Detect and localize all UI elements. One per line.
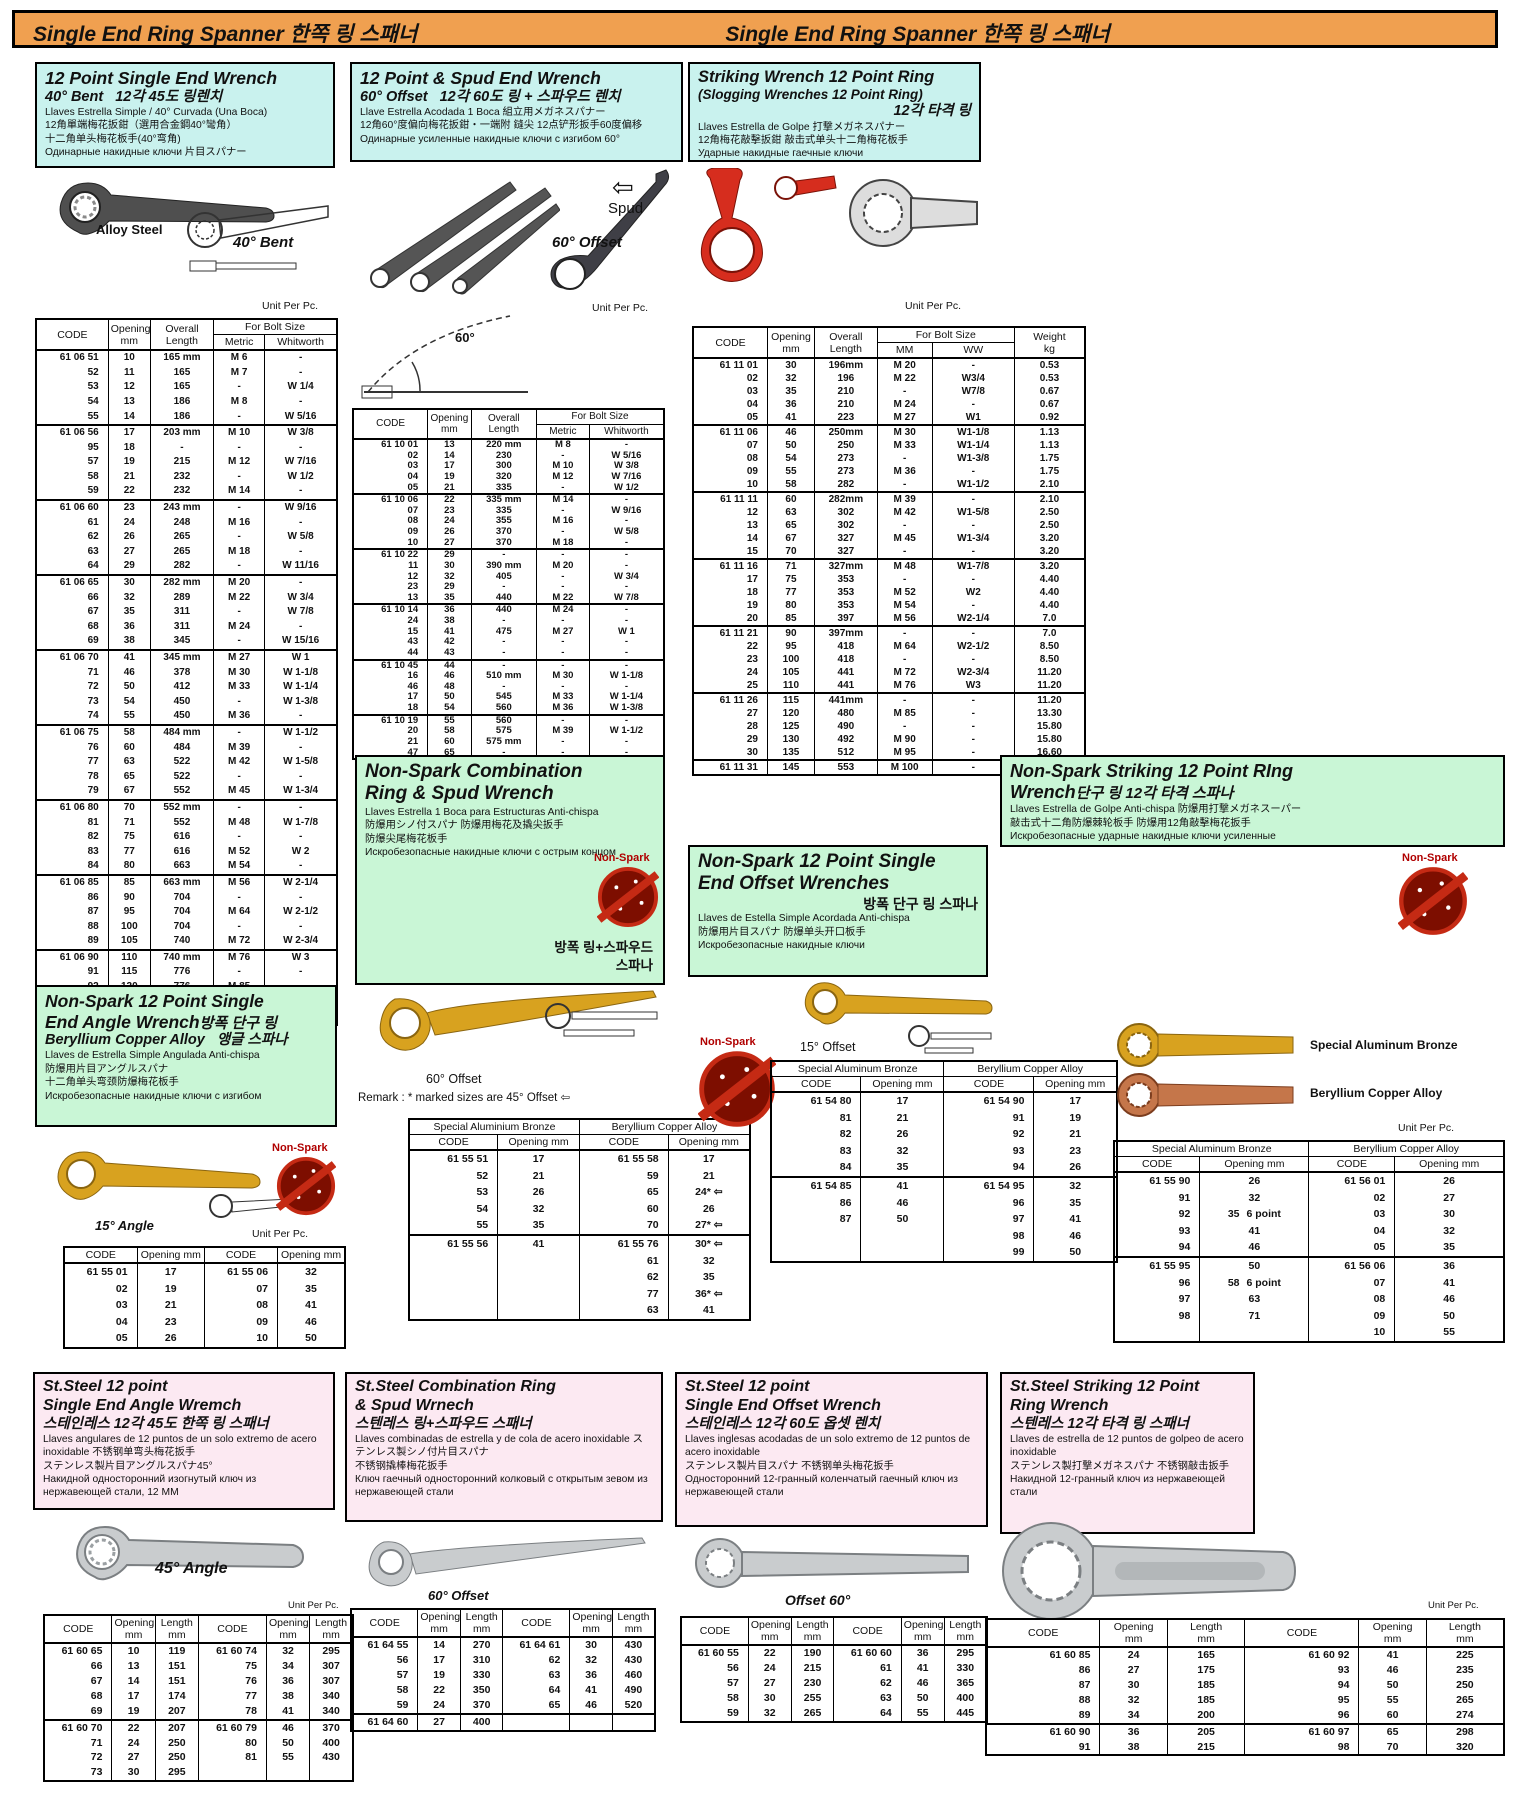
table-cell: 545 — [471, 692, 536, 703]
table-row: 8480663M 54- — [36, 859, 337, 875]
table-cell: 282 mm — [150, 575, 213, 591]
table-cell: - — [214, 830, 265, 845]
page-title-repeat: Single End Ring Spanner 한쪽 링 스패너 — [725, 18, 1109, 48]
table-cell: - — [932, 693, 1014, 707]
table-cell: 41 — [1200, 1223, 1309, 1240]
column-header: Opening mm — [668, 1135, 750, 1151]
unit-per-pc-label: Unit Per Pc. — [252, 1228, 308, 1240]
cell-note: 6 point — [1247, 1277, 1281, 1289]
table-row: 03210841 — [64, 1297, 345, 1314]
table-cell: 61 — [579, 1253, 668, 1270]
table-nonspark-offset: Special Aluminum BronzeBeryllium Copper … — [770, 1060, 1118, 1263]
table-cell: 60 — [108, 741, 150, 756]
unit-per-pc-label: Unit Per Pc. — [592, 302, 648, 314]
table-cell: 61 64 55 — [351, 1637, 418, 1653]
table-cell: 46 — [570, 1698, 613, 1714]
table-cell: 02 — [1309, 1190, 1395, 1207]
table-cell: 34 — [1100, 1708, 1167, 1724]
column-header: Opening mm — [418, 1609, 461, 1637]
table-cell: 62 — [579, 1269, 668, 1286]
table-cell: 250mm — [815, 425, 878, 439]
table-cell: M 12 — [536, 472, 589, 483]
table-cell: 48 — [428, 682, 472, 693]
table-cell: 35 — [278, 1281, 345, 1298]
table-cell: W1-1/4 — [932, 439, 1014, 452]
table-row: 61 60 651011961 60 7432295 — [44, 1643, 353, 1659]
description-line: Одинарные накидные ключи 片目スパナー — [45, 146, 325, 159]
table-cell: 61 55 01 — [64, 1263, 137, 1281]
table-cell: 94 — [1245, 1678, 1359, 1693]
table-cell: 405 — [471, 572, 536, 583]
table-cell: 91 — [1114, 1190, 1200, 1207]
table-cell: 17 — [418, 1653, 461, 1668]
table-cell: - — [214, 920, 265, 935]
table-cell: 522 — [150, 755, 213, 770]
page-header-banner: Single End Ring Spanner 한쪽 링 스패너 Single … — [12, 10, 1498, 48]
description-line: 12角單端梅花扳鉗（選用合金鋼40°彎角） — [45, 119, 325, 132]
table-cell: M 8 — [214, 395, 265, 410]
table-cell: W 3/4 — [589, 572, 664, 583]
data-table: CODEOpening mmOverall LengthFor Bolt Siz… — [35, 318, 338, 1026]
table-cell: 61 11 06 — [693, 425, 767, 439]
table-cell: 53 — [409, 1184, 498, 1201]
table-cell: 200 — [1167, 1708, 1245, 1724]
table-row: 61 64 551427061 64 6130430 — [351, 1637, 655, 1653]
table-cell: 90 — [767, 626, 814, 640]
table-cell: 61 56 01 — [1309, 1172, 1395, 1190]
table-cell: M 42 — [214, 755, 265, 770]
table-cell: 95 — [1245, 1693, 1359, 1708]
table-cell: 58 — [36, 470, 108, 485]
table-cell: M 30 — [214, 666, 265, 681]
table-cell: 11.20 — [1014, 666, 1085, 679]
table-nonspark-striking: Special Aluminum BronzeBeryllium Copper … — [1113, 1140, 1505, 1343]
table-cell: 75 — [108, 830, 150, 845]
table-cell: 151 — [155, 1659, 198, 1674]
table-cell: - — [265, 709, 337, 725]
table-cell: 05 — [693, 411, 767, 425]
table-cell: W 3 — [265, 950, 337, 966]
table-cell: 26 — [1034, 1159, 1117, 1177]
table-cell: 185 — [1167, 1678, 1245, 1693]
table-cell: W1 — [932, 411, 1014, 425]
table-cell: 55 — [1359, 1693, 1426, 1708]
table-cell: - — [265, 920, 337, 935]
table-cell: 21 — [137, 1297, 204, 1314]
table-cell: - — [536, 549, 589, 561]
table-row: 88321859555265 — [986, 1693, 1504, 1708]
table-cell: 55 — [901, 1706, 944, 1722]
table-cell: 27 — [748, 1676, 791, 1691]
table-cell: 65 — [1359, 1724, 1426, 1740]
table-row: 57193306336460 — [351, 1668, 655, 1683]
table-cell: 03 — [1309, 1206, 1395, 1223]
table-cell: 36 — [901, 1645, 944, 1661]
table-row: 61 11 0130196mmM 20-0.53 — [693, 358, 1085, 372]
table-cell: 94 — [1114, 1239, 1200, 1257]
table-row: 0824355M 16- — [353, 516, 664, 527]
table-cell: 100 — [767, 653, 814, 666]
column-header: Special Aluminum Bronze — [1114, 1141, 1309, 1157]
table-cell: W 15/16 — [265, 634, 337, 650]
table-cell — [498, 1269, 580, 1286]
column-header: Opening mm — [112, 1615, 155, 1643]
table-cell: - — [471, 660, 536, 672]
table-cell: 61 10 14 — [353, 604, 428, 616]
column-header: Whitworth — [265, 335, 337, 351]
angle-45-label: 45° Angle — [155, 1560, 228, 1578]
column-header: CODE — [693, 327, 767, 358]
table-cell: 232 — [150, 484, 213, 500]
table-row: 0750250M 33W1-1/41.13 — [693, 439, 1085, 452]
table-cell: - — [214, 559, 265, 575]
table-cell: 41 — [861, 1177, 944, 1195]
table-cell: 35 — [861, 1159, 944, 1177]
description-line: Llaves Estrella de Golpe 打撃メガネスパナー — [698, 121, 971, 134]
table-cell — [1200, 1324, 1309, 1342]
table-cell: 3.20 — [1014, 559, 1085, 573]
table-row: 81219119 — [771, 1110, 1117, 1127]
table-cell: 21 — [428, 483, 472, 495]
table-cell: W2-1/2 — [932, 640, 1014, 653]
table-cell: 520 — [612, 1698, 655, 1714]
table-cell: 175 — [1167, 1663, 1245, 1678]
table-cell: 30 — [108, 575, 150, 591]
table-cell: 67 — [44, 1674, 112, 1689]
table-cell: 24 — [112, 1736, 155, 1751]
table-cell: - — [471, 549, 536, 561]
table-cell: 97 — [944, 1211, 1034, 1228]
table-cell: 460 — [612, 1668, 655, 1683]
table-cell: 100 — [108, 920, 150, 935]
table-cell: 21 — [108, 470, 150, 485]
table-row: 04230946 — [64, 1314, 345, 1331]
table-row: 61 06 5617203 mmM 10W 3/8 — [36, 425, 337, 441]
description-line: 防爆用片目アングルスパナ — [45, 1063, 327, 1076]
product-title: Striking Wrench 12 Point Ring — [698, 68, 971, 87]
table-row: 98710950 — [1114, 1308, 1504, 1325]
table-cell: - — [877, 545, 932, 559]
table-cell: 704 — [150, 905, 213, 920]
table-cell: 445 — [944, 1706, 987, 1722]
table-cell: 44 — [353, 648, 428, 660]
table-cell: 50 — [1359, 1678, 1426, 1693]
table-cell: 350 — [460, 1683, 503, 1698]
table-row: 6235 — [409, 1269, 750, 1286]
table-cell: M 90 — [877, 733, 932, 746]
table-cell: 105 — [108, 934, 150, 950]
table-row: 1058282-W1-1/22.10 — [693, 478, 1085, 492]
table-cell: 46 — [901, 1676, 944, 1691]
table-cell: 65 — [767, 519, 814, 532]
table-cell: 17 — [112, 1689, 155, 1704]
table-cell: M 30 — [877, 425, 932, 439]
table-row: 7455450M 36- — [36, 709, 337, 725]
table-cell: 63 — [36, 545, 108, 560]
table-cell: 3.20 — [1014, 545, 1085, 559]
table-cell: 243 mm — [150, 500, 213, 516]
table-cell: 09 — [1309, 1308, 1395, 1325]
table-row: 61 60 702220761 60 7946370 — [44, 1720, 353, 1736]
table-cell: W 1-1/4 — [589, 692, 664, 703]
table-cell: 57 — [351, 1668, 418, 1683]
table-cell: 61 10 06 — [353, 494, 428, 506]
product-title-2: Ring Wrench — [1010, 1397, 1245, 1416]
table-nonspark-combination: Special Aluminium BronzeBeryllium Copper… — [408, 1118, 751, 1321]
table-cell: 32 — [767, 372, 814, 385]
table-row: 1980353M 54-4.40 — [693, 599, 1085, 612]
table-row: 61 06 7558484 mm-W 1-1/2 — [36, 725, 337, 741]
table-cell: 15.80 — [1014, 720, 1085, 733]
product-description: Llaves combinadas de estrella y de cola … — [355, 1433, 653, 1500]
table-cell: 400 — [460, 1714, 503, 1731]
table-cell: 61 06 56 — [36, 425, 108, 441]
product-title-korean: 스테인레스 12각 60도 옵셋 렌치 — [685, 1416, 978, 1433]
table-cell: - — [589, 660, 664, 672]
table-row: 93410432 — [1114, 1223, 1504, 1240]
table-cell: 43 — [428, 648, 472, 660]
table-cell: M 20 — [877, 358, 932, 372]
table-row: 1130390 mmM 20- — [353, 561, 664, 572]
table-cell: 250 — [815, 439, 878, 452]
product-description: Llaves angulares de 12 puntos de un solo… — [43, 1433, 325, 1500]
table-cell: 397 — [815, 612, 878, 626]
table-cell: 04 — [693, 398, 767, 411]
table-cell: - — [589, 737, 664, 748]
table-cell: 24 — [428, 516, 472, 527]
table-cell: 492 — [815, 733, 878, 746]
table-row: 91320227 — [1114, 1190, 1504, 1207]
table-cell: 26 — [861, 1126, 944, 1143]
table-row: 8171552M 48W 1-7/8 — [36, 816, 337, 831]
table-cell: M 100 — [877, 760, 932, 775]
table-cell: 370 — [471, 527, 536, 538]
table-cell: W 2-3/4 — [265, 934, 337, 950]
table-cell: - — [265, 891, 337, 906]
column-header: CODE — [681, 1617, 748, 1645]
table-cell: 250 — [155, 1750, 198, 1765]
unit-per-pc-label: Unit Per Pc. — [1398, 1122, 1454, 1134]
spud-arrow-icon: ⇦ — [612, 172, 634, 203]
table-row: 7736* ⇦ — [409, 1286, 750, 1303]
table-cell: 24 — [353, 616, 428, 627]
table-row: 61 06 8070552 mm-- — [36, 800, 337, 816]
column-header: Length mm — [1167, 1619, 1245, 1647]
table-row: 61 06 6023243 mm-W 9/16 — [36, 500, 337, 516]
table-cell: 165 — [150, 380, 213, 395]
column-header: Overall Length — [815, 327, 878, 358]
table-cell: 83 — [771, 1143, 861, 1160]
table-row: 61 11 26115441mm--11.20 — [693, 693, 1085, 707]
product-title: Non-Spark Combination — [365, 761, 655, 783]
table-cell: M 24 — [536, 604, 589, 616]
table-cell: 365 — [944, 1676, 987, 1691]
column-header: CODE — [503, 1609, 570, 1637]
table-row: 69192077841340 — [44, 1704, 353, 1720]
table-cell: 165 — [1167, 1647, 1245, 1663]
table-cell: 08 — [693, 452, 767, 465]
column-header: For Bolt Size — [214, 319, 337, 335]
description-line: Llaves inglesas acodadas de un solo extr… — [685, 1433, 978, 1460]
table-cell: 663 mm — [150, 875, 213, 891]
table-cell: 165 mm — [150, 350, 213, 366]
column-header: Length mm — [791, 1617, 834, 1645]
table-row: 1750545M 33W 1-1/4 — [353, 692, 664, 703]
table-cell: - — [214, 725, 265, 741]
table-cell: 67 — [108, 784, 150, 800]
table-cell: M 39 — [214, 741, 265, 756]
table-cell: 50 — [767, 439, 814, 452]
table-cell: 22 — [418, 1683, 461, 1698]
table-cell: - — [589, 549, 664, 561]
table-cell: 61 54 80 — [771, 1092, 861, 1110]
description-line: Одинарные усиленные накидные ключи с изг… — [360, 133, 673, 146]
table-cell: 09 — [204, 1314, 277, 1331]
table-cell — [612, 1714, 655, 1731]
table-row: 86271759346235 — [986, 1663, 1504, 1678]
table-cell: 70 — [108, 800, 150, 816]
table-cell: 59 — [579, 1168, 668, 1185]
description-line: Накидной 12-гранный ключ из нержавеющей … — [1010, 1473, 1245, 1500]
table-cell: 36* ⇦ — [668, 1286, 750, 1303]
table-cell: 41 — [108, 650, 150, 666]
table-cell: - — [214, 441, 265, 456]
table-row: 1335440M 22W 7/8 — [353, 593, 664, 605]
table-cell: 35 — [108, 605, 150, 620]
table-cell: 13 — [112, 1659, 155, 1674]
table-cell: 484 — [150, 741, 213, 756]
table-cell: 2.50 — [1014, 506, 1085, 519]
table-cell: 740 mm — [150, 950, 213, 966]
table-cell: - — [214, 530, 265, 545]
table-cell: 248 — [150, 516, 213, 531]
table-cell: 510 mm — [471, 671, 536, 682]
table-cell: - — [214, 695, 265, 710]
column-header: Opening mm — [1034, 1077, 1117, 1093]
table-cell: 330 — [944, 1661, 987, 1676]
table-cell: W 7/16 — [265, 455, 337, 470]
table-cell: W 1 — [265, 650, 337, 666]
table-cell — [409, 1302, 498, 1320]
table-cell: 295 — [155, 1765, 198, 1781]
table-cell: 17 — [137, 1263, 204, 1281]
table-cell: W 3/4 — [265, 591, 337, 606]
unit-per-pc-label: Unit Per Pc. — [262, 300, 318, 312]
table-cell: 35 — [767, 385, 814, 398]
table-cell: M 22 — [536, 593, 589, 605]
table-row: 61 10 0622335 mmM 14- — [353, 494, 664, 506]
table-row: 66131517534307 — [44, 1659, 353, 1674]
table-cell: W 1-5/8 — [265, 755, 337, 770]
table-cell: 12 — [353, 572, 428, 583]
table-cell: 30 — [748, 1691, 791, 1706]
table-cell: 32 — [108, 591, 150, 606]
table-cell: - — [471, 582, 536, 593]
table-cell: 29 — [693, 733, 767, 746]
table-cell: 295 — [310, 1643, 353, 1659]
product-subtitle: 60° Offset — [360, 89, 428, 105]
table-cell: 295 — [944, 1645, 987, 1661]
table-cell: 81 — [771, 1110, 861, 1127]
table-row: 94460535 — [1114, 1239, 1504, 1257]
table-cell: 22 — [748, 1645, 791, 1661]
table-cell: 119 — [155, 1643, 198, 1659]
table-cell: 78 — [36, 770, 108, 785]
table-cell: 50 — [1200, 1257, 1309, 1275]
column-header: CODE — [198, 1615, 266, 1643]
table-cell: - — [877, 478, 932, 492]
table-cell: 2.10 — [1014, 492, 1085, 506]
table-cell: W7/8 — [932, 385, 1014, 398]
table-cell: 04 — [1309, 1223, 1395, 1240]
table-cell: 52 — [409, 1168, 498, 1185]
table-cell: 75 — [767, 573, 814, 586]
data-table: CODEOpening mmOverall LengthFor Bolt Siz… — [352, 408, 665, 760]
table-cell: 24* ⇦ — [668, 1184, 750, 1201]
table-cell: 61 06 65 — [36, 575, 108, 591]
column-header: Opening mm — [570, 1609, 613, 1637]
table-cell: - — [536, 682, 589, 693]
table-cell: 24 — [693, 666, 767, 679]
table-cell: - — [471, 637, 536, 648]
header-box-ststeel-striking: St.Steel Striking 12 Point Ring Wrench 스… — [1000, 1372, 1255, 1534]
table-cell: 36 — [1100, 1724, 1167, 1740]
table-row: 88100704-- — [36, 920, 337, 935]
table-cell: 23 — [1034, 1143, 1117, 1160]
nonspark-logo-icon — [698, 1050, 776, 1128]
table-cell: - — [932, 733, 1014, 746]
table-cell: 302 — [815, 506, 878, 519]
table-cell: - — [214, 380, 265, 395]
table-cell: W2-3/4 — [932, 666, 1014, 679]
table-cell: 12 — [693, 506, 767, 519]
table-cell: 61 06 70 — [36, 650, 108, 666]
table-cell — [861, 1228, 944, 1245]
table-row: 7660484M 39- — [36, 741, 337, 756]
description-line: Llaves de Estrella Simple Angulada Anti-… — [45, 1049, 327, 1062]
table-cell: M 45 — [214, 784, 265, 800]
table-cell: 55 — [36, 410, 108, 426]
table-cell: 30 — [112, 1765, 155, 1781]
table-cell: 54 — [36, 395, 108, 410]
table-row: 1541475M 27W 1 — [353, 627, 664, 638]
table-cell: M 39 — [536, 726, 589, 737]
table-cell: 85 — [108, 875, 150, 891]
table-row: 61 06 8585663 mmM 56W 2-1/4 — [36, 875, 337, 891]
table-cell: 61 06 60 — [36, 500, 108, 516]
silver-spud-wrench-image — [358, 1532, 648, 1592]
table-cell: 10 — [353, 538, 428, 550]
table-cell: M 27 — [214, 650, 265, 666]
table-cell: 110 — [108, 950, 150, 966]
table-cell: - — [589, 494, 664, 506]
table-cell: M 27 — [536, 627, 589, 638]
product-title: St.Steel Combination Ring — [355, 1378, 653, 1397]
table-cell: 450 — [150, 695, 213, 710]
table-row: 0854273-W1-3/81.75 — [693, 452, 1085, 465]
table-cell: - — [536, 637, 589, 648]
page-title: Single End Ring Spanner 한쪽 링 스패너 — [33, 18, 417, 48]
table-cell: 12 — [108, 380, 150, 395]
table-cell: 82 — [36, 830, 108, 845]
table-cell: - — [214, 965, 265, 980]
table-cell: 41 — [498, 1235, 580, 1253]
product-title: St.Steel 12 point — [43, 1378, 325, 1397]
table-cell: - — [214, 770, 265, 785]
table-cell: 89 — [36, 934, 108, 950]
table-cell — [771, 1228, 861, 1245]
table-cell: W 5/16 — [265, 410, 337, 426]
